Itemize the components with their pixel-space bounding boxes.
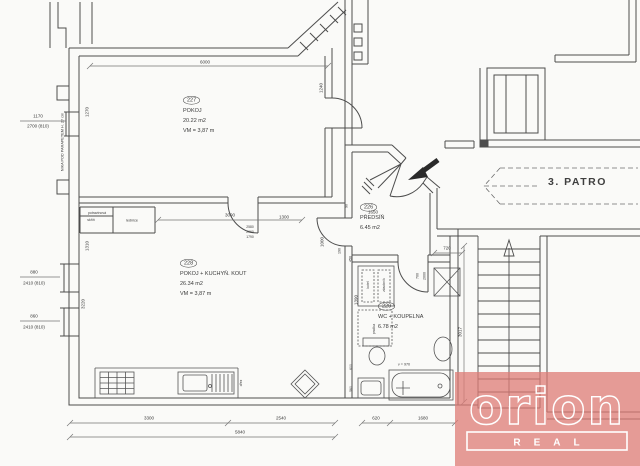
- orion-logo: orion REAL: [455, 372, 640, 466]
- room-227-area: 20.22 m2: [183, 116, 214, 126]
- entrance-arrow-icon: [408, 160, 438, 180]
- room-228-height: VM = 3,87 m: [180, 289, 246, 299]
- room-229-area: 6.78 m2: [378, 322, 423, 332]
- room-226-name: PŘEDSÍŇ: [360, 213, 384, 223]
- bathtub-icon: [389, 370, 453, 400]
- room-229-name: WC + KOUPELNA: [378, 312, 423, 322]
- dimension-lines: [20, 63, 467, 440]
- toilet-icon: [363, 338, 389, 346]
- boiler-unit-icon: [358, 266, 394, 306]
- floorplan-page: 227 POKOJ 20.22 m2 VM = 3,87 m 228 POKOJ…: [0, 0, 640, 466]
- room-228-name: POKOJ + KUCHYŇ. KOUT: [180, 269, 246, 279]
- room-227-height: VM = 3,87 m: [183, 126, 214, 136]
- orion-logo-brand: orion: [469, 378, 625, 436]
- room-label-228: 228 POKOJ + KUCHYŇ. KOUT 26.34 m2 VM = 3…: [180, 258, 246, 299]
- orion-logo-sub: REAL: [513, 438, 592, 449]
- room-label-227: 227 POKOJ 20.22 m2 VM = 3,87 m: [183, 95, 214, 136]
- room-227-number: 227: [183, 96, 200, 105]
- floor-label: 3. PATRO: [548, 176, 607, 188]
- walls-group: [50, 0, 640, 419]
- room-228-area: 26.34 m2: [180, 279, 246, 289]
- room-228-number: 228: [180, 259, 197, 268]
- room-227-name: POKOJ: [183, 106, 214, 116]
- room-226-area: 6.45 m2: [360, 223, 384, 233]
- room-label-229: 229 WC + KOUPELNA 6.78 m2: [378, 301, 423, 332]
- room-229-number: 229: [378, 302, 395, 311]
- washbasin-icon: [434, 337, 452, 361]
- room-label-226: 226 PŘEDSÍŇ 6.45 m2: [360, 202, 384, 233]
- fixtures: [95, 266, 460, 400]
- orion-logo-art: orion REAL: [455, 372, 640, 466]
- room-226-number: 226: [360, 203, 377, 212]
